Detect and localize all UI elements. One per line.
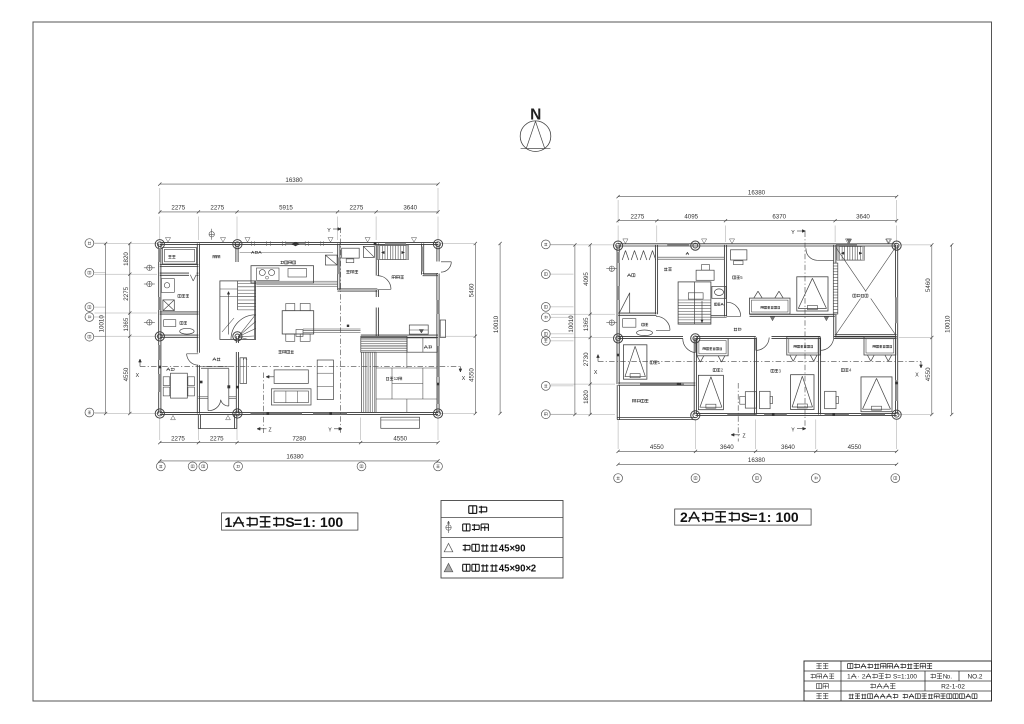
svg-text:3640: 3640 <box>856 214 870 221</box>
svg-text:5460: 5460 <box>925 278 932 292</box>
svg-text:S=1:100: S=1:100 <box>893 674 917 681</box>
svg-text:1: 1 <box>225 514 233 530</box>
svg-text:2275: 2275 <box>350 205 364 212</box>
svg-text:1365: 1365 <box>583 317 590 331</box>
svg-text:10010: 10010 <box>945 315 952 333</box>
svg-text:Y: Y <box>328 428 332 434</box>
svg-text:3640: 3640 <box>781 444 795 451</box>
svg-text:5460: 5460 <box>468 283 475 297</box>
svg-text:16380: 16380 <box>286 454 304 461</box>
svg-text:4550: 4550 <box>468 368 475 382</box>
svg-text:X: X <box>462 376 466 382</box>
svg-text:X: X <box>136 373 140 379</box>
svg-text:X: X <box>915 373 919 379</box>
svg-text:Z: Z <box>268 427 271 433</box>
svg-text:6370: 6370 <box>772 214 786 221</box>
svg-text:2: 2 <box>531 563 536 574</box>
svg-text:0: 0 <box>520 543 525 554</box>
svg-text:4550: 4550 <box>650 444 664 451</box>
svg-text:X: X <box>594 370 598 376</box>
svg-text:Y: Y <box>791 230 795 236</box>
svg-text:=: = <box>749 509 757 525</box>
svg-text:5915: 5915 <box>279 205 293 212</box>
svg-text:4095: 4095 <box>684 214 698 221</box>
svg-text:4550: 4550 <box>123 367 130 381</box>
svg-text:2: 2 <box>680 509 688 525</box>
svg-text:4550: 4550 <box>848 444 862 451</box>
svg-text:1820: 1820 <box>583 390 590 404</box>
svg-text:Z: Z <box>742 433 745 439</box>
svg-text:10010: 10010 <box>568 315 575 333</box>
svg-text:Y: Y <box>327 228 331 234</box>
svg-text::: : <box>311 514 316 530</box>
svg-text:0: 0 <box>335 514 343 530</box>
svg-text:10010: 10010 <box>493 315 500 333</box>
svg-text:2275: 2275 <box>210 435 224 442</box>
svg-text:2730: 2730 <box>583 352 590 366</box>
svg-text:.: . <box>950 674 952 681</box>
svg-text:2275: 2275 <box>631 214 645 221</box>
svg-text:3640: 3640 <box>403 205 417 212</box>
svg-text:10010: 10010 <box>99 315 106 333</box>
svg-text:1820: 1820 <box>123 252 130 266</box>
svg-text:NO.2: NO.2 <box>968 674 983 681</box>
svg-text:16380: 16380 <box>748 189 766 196</box>
svg-text:3640: 3640 <box>720 444 734 451</box>
svg-text:R2-1-02: R2-1-02 <box>941 684 965 691</box>
svg-text:0: 0 <box>791 509 799 525</box>
svg-text:·: · <box>858 674 860 681</box>
svg-text:1365: 1365 <box>123 317 130 331</box>
svg-text:2: 2 <box>862 674 866 681</box>
svg-text:2275: 2275 <box>123 286 130 300</box>
svg-text:4550: 4550 <box>925 367 932 381</box>
svg-text:2275: 2275 <box>171 435 185 442</box>
svg-text:16380: 16380 <box>748 457 766 464</box>
svg-text:16380: 16380 <box>285 177 303 184</box>
svg-text:2275: 2275 <box>171 205 185 212</box>
svg-text::: : <box>767 509 772 525</box>
svg-text:1: 1 <box>303 514 311 530</box>
svg-text:Y: Y <box>791 428 795 434</box>
svg-text:4550: 4550 <box>393 435 407 442</box>
svg-text:2275: 2275 <box>210 205 224 212</box>
svg-text:1: 1 <box>847 674 851 681</box>
svg-text:=: = <box>294 514 302 530</box>
svg-text:7280: 7280 <box>292 435 306 442</box>
svg-text:4095: 4095 <box>583 272 590 286</box>
svg-text:1: 1 <box>758 509 766 525</box>
